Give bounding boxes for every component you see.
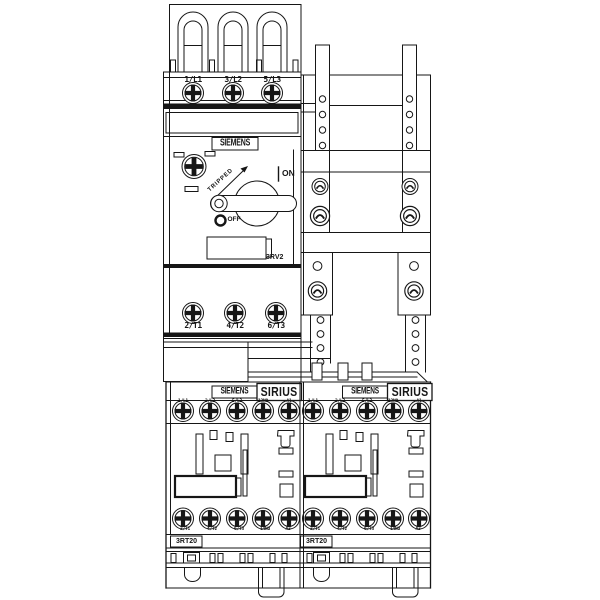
cl-bottom-label-4: 14NO — [260, 528, 270, 533]
cl-top-label-3: 5/L3 — [232, 400, 242, 405]
bracket-lower-plates — [301, 253, 431, 316]
contactor-assembly — [166, 382, 432, 597]
siemens-logo-contactor-left: SIEMENS — [221, 388, 249, 397]
breaker-bottom-terminal-label-3: 6/T3 — [267, 322, 284, 330]
technical-drawing: 1/L1 3/L2 5/L3 SIEMENS TRIPPED ON OFF 3R… — [0, 0, 600, 600]
cl-bottom-label-3: 6/T3 — [234, 528, 244, 533]
cr-bottom-label-4: 14NO — [390, 528, 400, 533]
cl-bottom-label-1: 2/T1 — [180, 528, 190, 533]
settings-window — [207, 237, 272, 259]
contactor-right-model-label: 3RT20 — [306, 538, 327, 545]
rotary-handle — [211, 181, 297, 226]
breaker-lower-block — [164, 342, 331, 382]
cl-top-label-5: A1 — [286, 400, 291, 405]
breaker-bottom-terminal-label-1: 2/T1 — [184, 322, 201, 330]
cr-top-label-4: 13NO — [388, 400, 398, 405]
off-position-mark — [216, 216, 226, 226]
cr-top-label-1: 1/L1 — [308, 400, 318, 405]
adjustment-dial — [182, 155, 206, 179]
on-label: ON — [282, 169, 295, 178]
bracket-feet — [312, 363, 372, 380]
label-strip — [166, 113, 298, 134]
cr-top-label-2: 3/L2 — [335, 400, 345, 405]
sirius-label-right: SIRIUS — [391, 386, 428, 399]
cl-top-label-4: 13NO — [258, 400, 268, 405]
breaker-top-terminal-label-3: 5/L3 — [263, 76, 280, 84]
cr-bottom-label-3: 6/T3 — [364, 528, 374, 533]
cr-top-label-3: 5/L3 — [362, 400, 372, 405]
cr-top-label-5: A1 — [416, 400, 421, 405]
breaker-top-terminal-screws — [183, 83, 283, 104]
cr-bottom-label-5: A2 — [415, 528, 420, 533]
breaker-model-label: 3RV2 — [266, 254, 283, 261]
breaker-top-terminal-label-1: 1/L1 — [184, 76, 201, 84]
busbar-tabs — [171, 12, 299, 72]
line-art — [0, 0, 600, 600]
bracket-screws — [310, 179, 419, 226]
cr-bottom-label-1: 2/T1 — [310, 528, 320, 533]
sirius-label-left: SIRIUS — [261, 386, 298, 399]
siemens-logo-breaker: SIEMENS — [220, 138, 250, 148]
cl-top-label-2: 3/L2 — [205, 400, 215, 405]
black-band — [164, 104, 302, 110]
cl-bottom-label-2: 4/T2 — [207, 528, 217, 533]
bracket-rail-holes-top — [319, 96, 412, 149]
breaker-bottom-terminal-label-2: 4/T2 — [226, 322, 243, 330]
off-label: OFF — [228, 217, 241, 224]
cl-top-label-1: 1/L1 — [178, 400, 188, 405]
contactor-left-model-label: 3RT20 — [176, 538, 197, 545]
cr-bottom-label-2: 4/T2 — [337, 528, 347, 533]
siemens-logo-contactor-right: SIEMENS — [351, 388, 379, 397]
cl-bottom-label-5: A2 — [285, 528, 290, 533]
breaker-top-terminal-label-2: 3/L2 — [224, 76, 241, 84]
